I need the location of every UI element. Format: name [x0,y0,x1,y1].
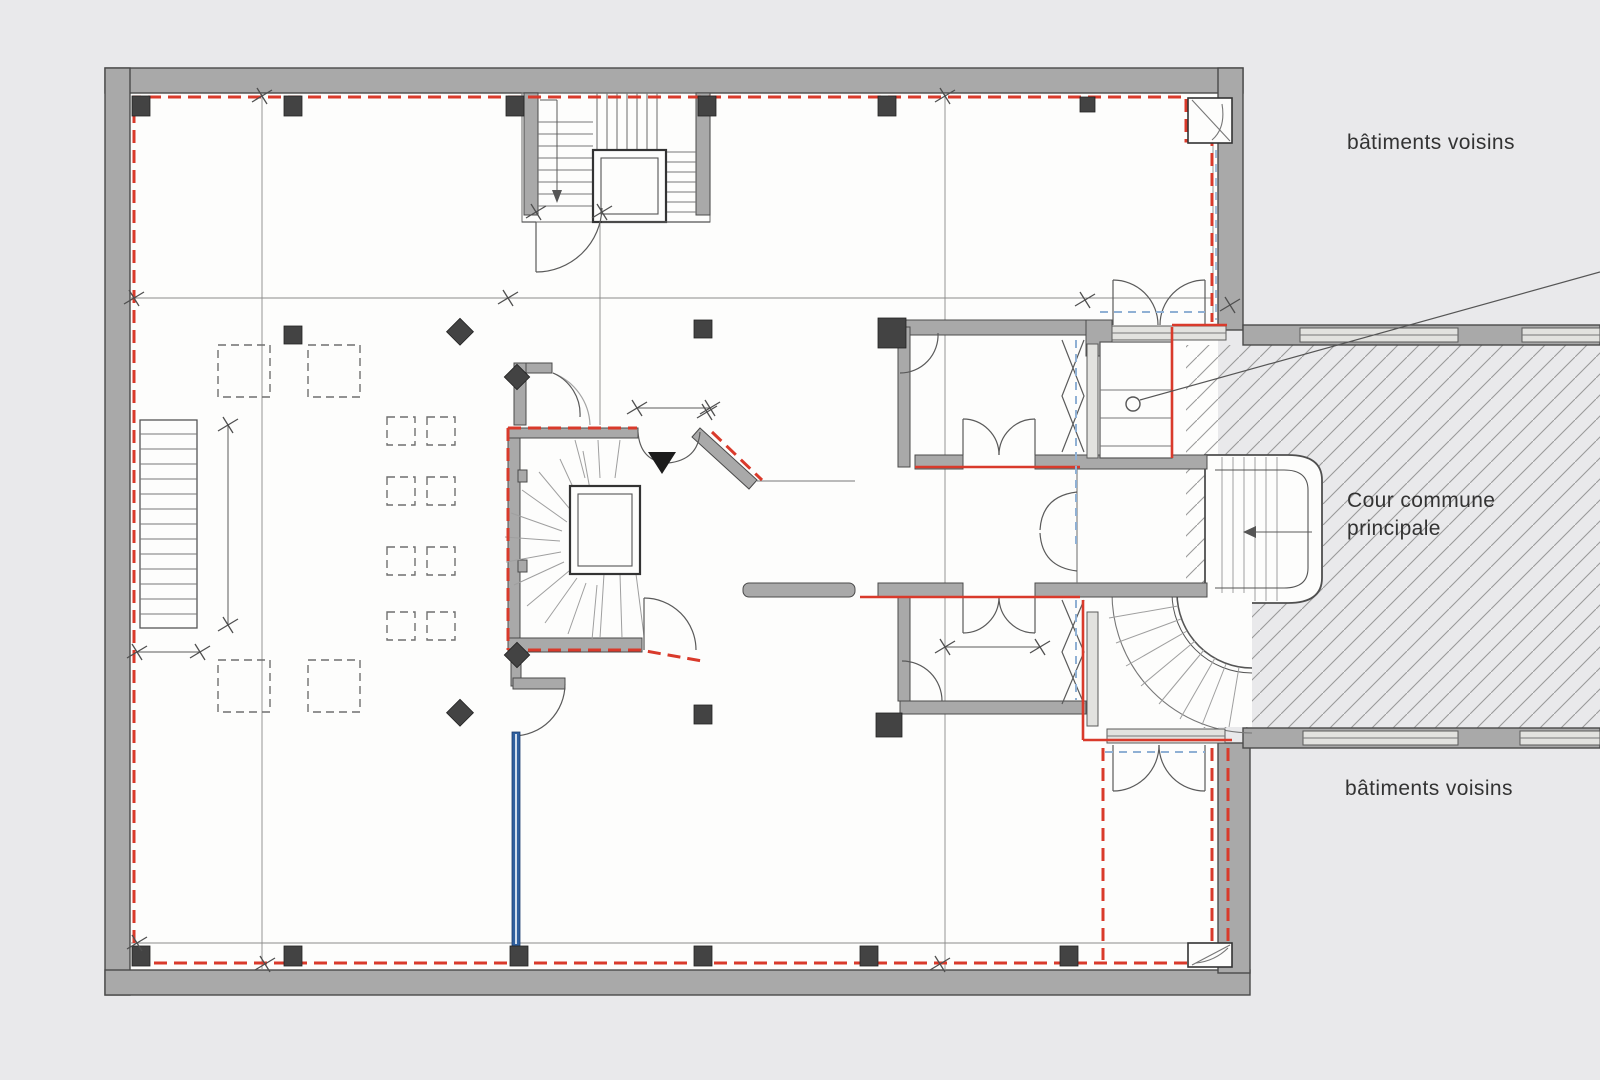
label-courtyard-line1: Cour commune [1347,489,1495,512]
glazed-partition-se [1087,612,1098,726]
corner-detail-northeast [1188,98,1232,143]
floor-plan-drawing: bâtiments voisins Cour commune principal… [0,0,1600,1080]
stair-central-wall-left [508,428,520,650]
label-neighbors-bottom: bâtiments voisins [1345,777,1513,800]
wall-pier [878,318,906,348]
corner-detail-southeast [1188,943,1232,967]
courtyard-entry-stair [1205,455,1322,603]
stair-west [140,420,197,628]
exterior-wall-bottom [105,970,1250,995]
mailbox-unit [1100,342,1172,458]
label-neighbors-top: bâtiments voisins [1347,131,1515,154]
window-band-top [1300,328,1600,342]
elevator-central [570,486,640,574]
label-courtyard-line2: principale [1347,517,1441,540]
building-shell [105,68,1250,995]
courtyard-fan-stair [1098,593,1252,733]
exterior-wall-top [105,68,1243,93]
exterior-wall-left [105,68,130,995]
interior-floor [130,93,1218,970]
wall-pier [876,713,902,737]
callout-circle [1126,397,1140,411]
floor-plan-sheet: bâtiments voisins Cour commune principal… [0,0,1600,1080]
exterior-wall-right-lower [1218,743,1250,973]
window-band-bottom [1303,731,1600,745]
glazed-partition-ne [1087,344,1098,458]
